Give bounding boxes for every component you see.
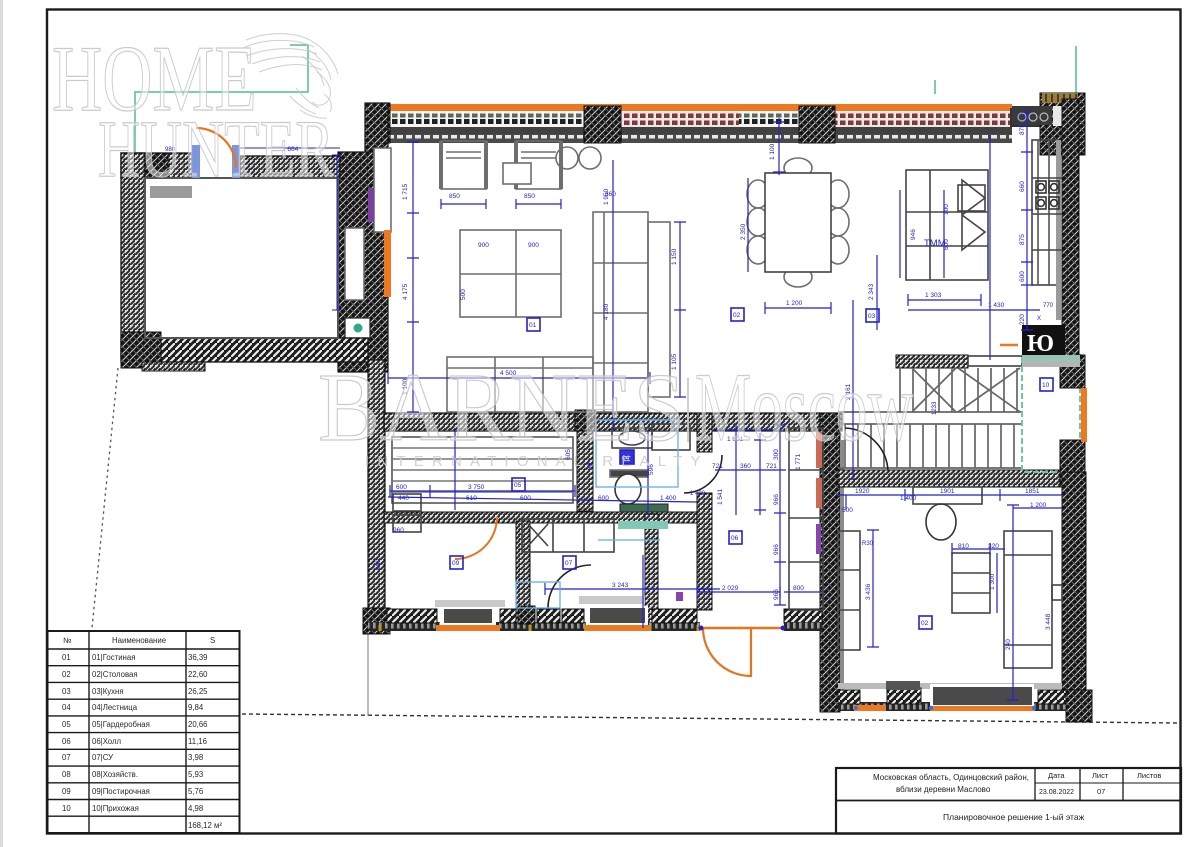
svg-text:1901: 1901 [940,488,955,495]
svg-text:1 300: 1 300 [989,573,996,590]
svg-text:4,98: 4,98 [188,804,203,813]
svg-text:800: 800 [793,585,804,592]
svg-text:INTERNATIONAL REALTY: INTERNATIONAL REALTY [365,453,709,470]
svg-text:875: 875 [1019,234,1026,245]
svg-text:360: 360 [605,191,616,198]
svg-text:HUNTER: HUNTER [98,105,335,195]
svg-text:100: 100 [943,204,950,215]
svg-text:1 100: 1 100 [769,143,776,160]
svg-text:600: 600 [598,495,609,502]
svg-text:20,66: 20,66 [188,720,208,729]
svg-text:810: 810 [958,543,969,550]
svg-text:01: 01 [529,322,537,329]
svg-text:R30: R30 [862,541,874,547]
svg-text:2 343: 2 343 [868,283,875,300]
svg-text:1 200: 1 200 [1030,502,1047,509]
svg-text:721: 721 [766,463,777,470]
svg-text:600: 600 [943,239,950,250]
svg-text:1 400: 1 400 [690,491,706,497]
svg-text:BARNES: BARNES [318,353,685,461]
svg-text:1 400: 1 400 [900,495,917,502]
svg-text:4 175: 4 175 [402,283,409,300]
svg-text:850: 850 [524,193,535,200]
svg-text:09: 09 [452,560,460,567]
svg-text:09: 09 [62,787,71,796]
svg-text:Наименование: Наименование [112,636,166,645]
svg-text:1 303: 1 303 [925,292,942,299]
svg-text:1 715: 1 715 [402,183,409,200]
svg-text:03|Кухня: 03|Кухня [92,687,124,696]
svg-text:03: 03 [868,313,876,320]
svg-text:600: 600 [396,484,407,491]
svg-text:04: 04 [62,703,71,712]
svg-text:04|Лестница: 04|Лестница [92,703,138,712]
svg-text:23.08.2022: 23.08.2022 [1039,789,1074,796]
svg-text:06: 06 [731,535,739,542]
svg-text:1 150: 1 150 [671,248,678,265]
svg-text:960: 960 [393,527,404,534]
svg-text:600: 600 [520,495,531,502]
svg-text:01: 01 [62,653,71,662]
svg-text:220: 220 [1019,314,1026,325]
svg-text:966: 966 [773,589,780,600]
svg-text:Московская область, Одинцовски: Московская область, Одинцовский район, [873,773,1029,782]
svg-text:600: 600 [1019,271,1026,282]
svg-text:№: № [63,636,71,645]
svg-text:05|Гардеробная: 05|Гардеробная [92,720,150,729]
svg-text:02: 02 [733,312,741,319]
svg-text:36,39: 36,39 [188,653,208,662]
svg-text:02: 02 [921,620,929,627]
svg-text:03: 03 [62,687,71,696]
svg-text:960: 960 [375,559,382,570]
svg-text:08: 08 [62,770,71,779]
svg-text:02|Столовая: 02|Столовая [92,670,138,679]
svg-text:360: 360 [740,463,751,470]
svg-text:1851: 1851 [1025,488,1040,495]
svg-text:вблизи деревни Маслово: вблизи деревни Маслово [896,785,991,794]
svg-text:1 200: 1 200 [786,300,803,307]
svg-text:2 029: 2 029 [722,585,739,592]
svg-text:3 448: 3 448 [1045,613,1052,630]
svg-text:770: 770 [1043,303,1054,309]
svg-text:05: 05 [514,482,522,489]
svg-text:4 180: 4 180 [603,303,610,320]
svg-text:07: 07 [565,560,573,567]
svg-text:Планировочное решение 1-ый эта: Планировочное решение 1-ый этаж [943,812,1085,822]
svg-text:Ю: Ю [1027,331,1054,357]
svg-text:1 541: 1 541 [717,488,724,505]
svg-text:08|Хозяйств.: 08|Хозяйств. [92,770,138,779]
svg-text:1 430: 1 430 [988,302,1005,309]
svg-text:10|Прихожая: 10|Прихожая [92,804,139,813]
svg-text:168,12 м²: 168,12 м² [188,821,222,830]
svg-text:721: 721 [712,463,723,470]
svg-text:01|Гостиная: 01|Гостиная [92,653,135,662]
svg-text:3,98: 3,98 [188,753,203,762]
svg-text:5,76: 5,76 [188,787,203,796]
svg-text:900: 900 [478,242,489,249]
svg-text:26,25: 26,25 [188,687,208,696]
svg-text:1 400: 1 400 [660,495,677,502]
svg-text:2 350: 2 350 [740,223,747,240]
svg-text:1233: 1233 [932,401,938,415]
svg-text:S: S [210,636,215,645]
svg-text:10: 10 [1042,382,1050,389]
svg-text:875: 875 [1019,124,1026,135]
svg-text:Лист: Лист [1092,771,1109,780]
svg-text:3 436: 3 436 [865,583,872,600]
svg-text:850: 850 [449,193,460,200]
svg-text:9,84: 9,84 [188,703,204,712]
svg-text:06: 06 [62,737,71,746]
svg-text:320: 320 [988,543,999,550]
svg-text:1920: 1920 [855,488,870,495]
svg-text:22,60: 22,60 [188,670,208,679]
svg-text:946: 946 [910,229,917,240]
svg-text:10: 10 [62,804,71,813]
svg-text:610: 610 [466,495,477,502]
svg-text:09|Постирочная: 09|Постирочная [92,787,150,796]
svg-text:3 750: 3 750 [468,484,485,491]
svg-text:07: 07 [62,753,71,762]
svg-text:240: 240 [1005,639,1012,650]
svg-text:07: 07 [1097,787,1105,796]
svg-text:5,93: 5,93 [188,770,203,779]
svg-text:966: 966 [773,494,780,505]
svg-text:Листов: Листов [1137,771,1161,780]
svg-text:07|СУ: 07|СУ [92,753,113,762]
svg-text:05: 05 [62,720,71,729]
svg-text:06|Холл: 06|Холл [92,737,122,746]
svg-text:3 243: 3 243 [612,582,629,589]
svg-text:Moscow: Moscow [695,352,913,462]
svg-text:X: X [1037,316,1041,322]
svg-text:Дата: Дата [1048,771,1065,780]
svg-text:966: 966 [773,544,780,555]
svg-text:660: 660 [1019,181,1026,192]
svg-text:11,16: 11,16 [188,737,207,746]
svg-text:02: 02 [62,670,71,679]
svg-text:500: 500 [842,507,853,514]
svg-text:900: 900 [528,242,539,249]
svg-text:500: 500 [460,289,467,300]
svg-text:440: 440 [398,495,409,502]
